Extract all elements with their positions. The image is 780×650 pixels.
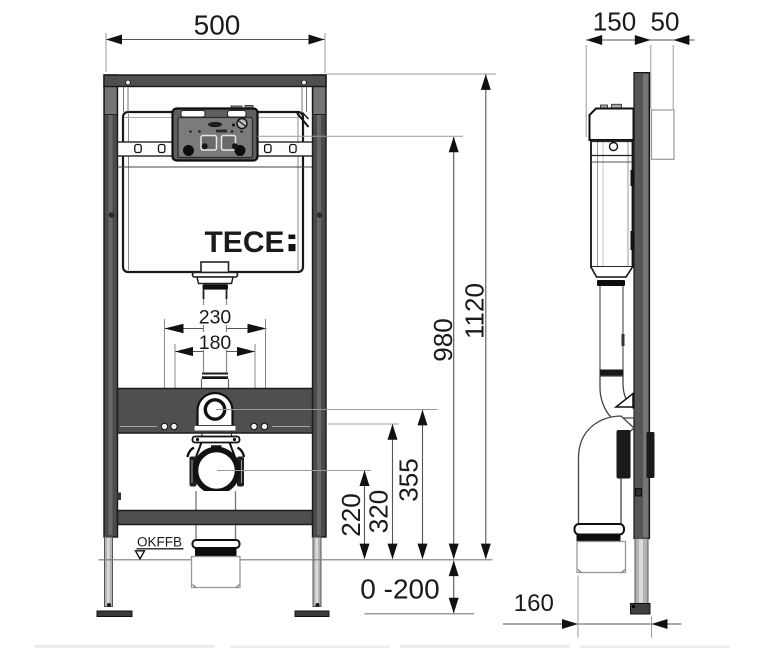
svg-text:500: 500 [194,10,241,41]
svg-text:OKFFB: OKFFB [137,535,182,550]
svg-text:50: 50 [651,7,680,37]
svg-text:1120: 1120 [460,283,490,339]
svg-text:150: 150 [593,7,636,37]
svg-text:980: 980 [428,318,458,361]
svg-text:355: 355 [394,458,424,501]
svg-text:0 -200: 0 -200 [360,574,439,605]
svg-text:180: 180 [199,332,232,354]
svg-text:230: 230 [199,307,232,329]
svg-text:160: 160 [514,590,554,617]
svg-text:320: 320 [364,490,394,533]
svg-text:220: 220 [336,493,366,536]
svg-text:TECE: TECE [204,226,284,259]
